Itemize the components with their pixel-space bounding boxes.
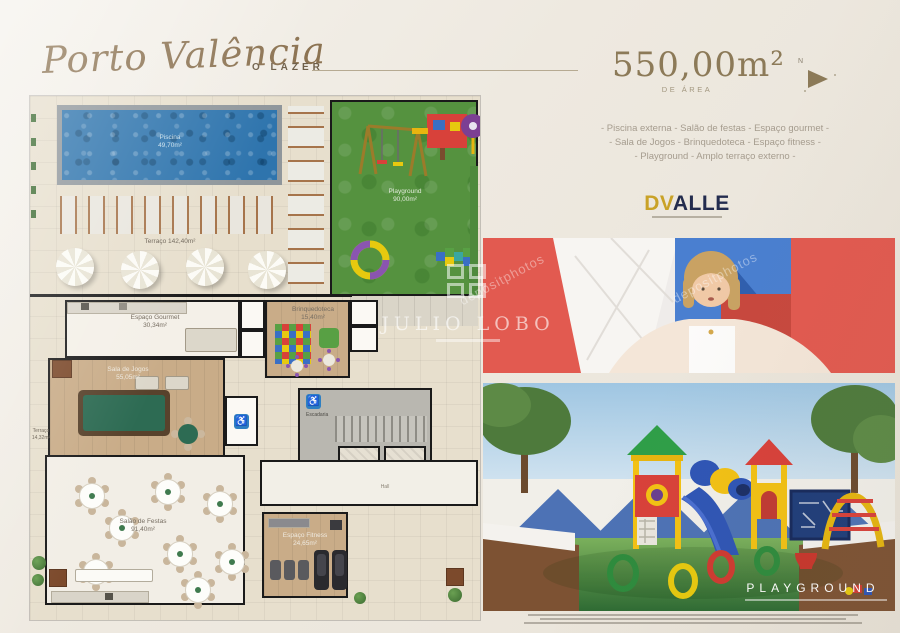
party-table (219, 549, 245, 575)
photo-caption: PLAYGROUND (746, 581, 879, 595)
photo-playground: PLAYGROUND (483, 383, 895, 611)
compass-dot (804, 90, 806, 92)
exercise-bike (270, 560, 281, 580)
buffet-table (75, 569, 153, 582)
hedge-strip (470, 166, 478, 296)
room-label-brinquedoteca: Brinquedoteca15,40m² (278, 306, 348, 323)
wheelchair-icon: ♿ (234, 414, 249, 429)
photo-playground-illustration: PLAYGROUND (483, 383, 895, 611)
party-table (155, 479, 181, 505)
room-label-jogos: Sala de Jogos55,05m² (88, 366, 168, 383)
kitchen-counter (51, 591, 149, 603)
amenities-line-2: - Sala de Jogos - Brinquedoteca - Espaço… (540, 136, 890, 150)
room-label-gourmet: Espaço Gourmet30,34m² (115, 314, 195, 331)
party-table (207, 491, 233, 517)
stairs-label: Escadaria (306, 412, 356, 419)
disclaimer-line (540, 618, 846, 620)
stairs (335, 416, 427, 442)
amenities-list: - Piscina externa - Salão de festas - Es… (540, 122, 890, 164)
sun-loungers-column (288, 106, 324, 284)
party-table (185, 577, 211, 603)
cabinet (49, 569, 67, 587)
sun-loungers-row (60, 196, 282, 234)
area-caption: DE ÁREA (612, 85, 762, 94)
room-label-fitness: Espaço Fitness24,65m² (272, 532, 338, 549)
room-label-terraco-lateral: Terraço14,32m² (28, 428, 54, 441)
treadmill (332, 550, 347, 590)
room-label-festas: Salão de Festas91,40m² (88, 518, 198, 535)
section-divider-line (312, 70, 578, 71)
room-wc-small (240, 330, 265, 358)
photo-child-illustration (483, 238, 895, 373)
umbrella-table (56, 248, 94, 286)
billiard-table (78, 390, 170, 436)
compass-icon: N (796, 58, 842, 98)
floor-plan: Piscina49,70m² Terraço 142,40m² (30, 96, 480, 620)
planter (446, 568, 464, 586)
gourmet-table (185, 328, 237, 352)
disclaimer-line (528, 614, 858, 616)
bush (32, 574, 44, 586)
hall (260, 460, 478, 506)
section-label: O LAZER (252, 62, 324, 73)
hedge-plant (31, 138, 36, 146)
umbrella-table (248, 251, 286, 289)
compass-arrow-icon (808, 70, 828, 88)
developer-logo-dv: DV (644, 192, 673, 215)
weight-rack (268, 518, 310, 528)
wall (30, 294, 352, 297)
photo-child (483, 238, 895, 373)
compass-dot (834, 74, 836, 76)
room-label-terraco: Terraço 142,40m² (120, 238, 220, 246)
disclaimer-line (524, 622, 862, 624)
hedge-plant (31, 210, 36, 218)
party-table (79, 483, 105, 509)
bush (32, 556, 46, 570)
sofa (165, 376, 189, 390)
amenities-line-3: - Playground - Amplo terraço externo - (540, 150, 890, 164)
stove (81, 303, 89, 310)
hedge-plant (31, 186, 36, 194)
hedge-plant (31, 114, 36, 122)
exercise-bike (284, 560, 295, 580)
brand-script-title: Porto Valência (41, 29, 326, 82)
bush (354, 592, 366, 604)
compass-north-label: N (798, 58, 803, 65)
exercise-ball (330, 520, 342, 530)
room-label-piscina: Piscina49,70m² (125, 134, 215, 151)
sink (119, 303, 127, 310)
kids-table (291, 360, 303, 372)
card-table (178, 424, 198, 444)
grill-cabinet (52, 360, 72, 378)
room-wc-small (240, 300, 265, 330)
hedge-plant (31, 162, 36, 170)
developer-tagline (652, 216, 722, 218)
kids-table (323, 354, 335, 366)
play-mat (275, 324, 311, 364)
developer-logo-alle: ALLE (673, 192, 730, 215)
marketing-sheet: Porto Valência O LAZER 550,00m² DE ÁREA … (0, 0, 900, 633)
bush (448, 588, 462, 602)
umbrella-table (121, 251, 159, 289)
party-table (167, 541, 193, 567)
play-rug (319, 328, 339, 348)
area-value: 550,00m² (612, 48, 762, 82)
wheelchair-icon: ♿ (306, 394, 321, 409)
play-ring (354, 244, 386, 276)
hopscotch (436, 248, 472, 266)
amenities-line-1: - Piscina externa - Salão de festas - Es… (540, 122, 890, 136)
area-block: 550,00m² DE ÁREA (612, 48, 762, 94)
developer-logo: DVALLE (612, 192, 762, 216)
hall-label: Hall (370, 484, 400, 491)
exercise-bike (298, 560, 309, 580)
room-wc-small (350, 300, 378, 326)
stove (105, 593, 113, 600)
room-fitness (262, 512, 348, 598)
room-label-playground: Playground90,00m² (360, 188, 450, 205)
treadmill (314, 550, 329, 590)
umbrella-table (186, 248, 224, 286)
room-wc-small (350, 326, 378, 352)
